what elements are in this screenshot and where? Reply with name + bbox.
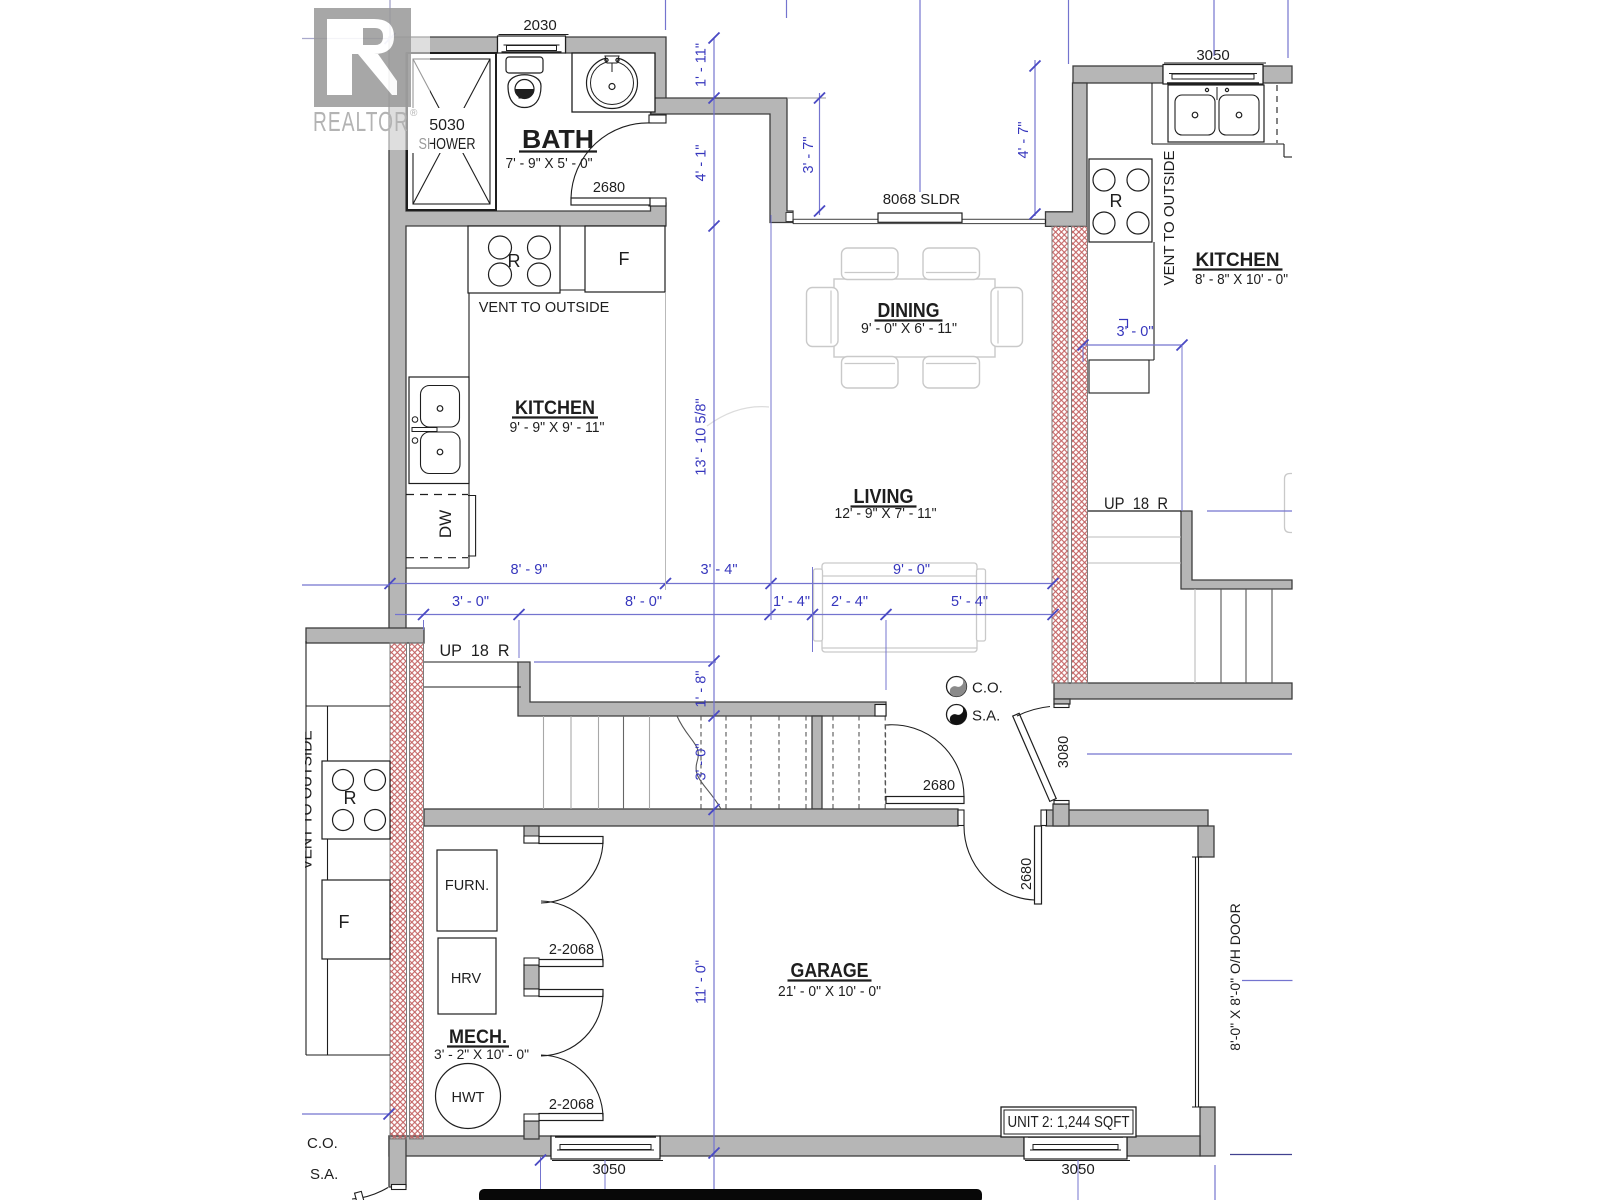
svg-text:5030: 5030: [429, 117, 465, 134]
svg-text:9' - 9" X 9' - 11": 9' - 9" X 9' - 11": [510, 420, 605, 436]
svg-text:1' - 4": 1' - 4": [773, 594, 810, 610]
svg-text:VENT TO OUTSIDE: VENT TO OUTSIDE: [479, 300, 610, 316]
svg-text:4' - 1": 4' - 1": [694, 145, 710, 182]
svg-text:3050: 3050: [1061, 1161, 1094, 1178]
svg-text:3' - 2" X 10' - 0": 3' - 2" X 10' - 0": [434, 1046, 529, 1062]
svg-text:UP 18 R: UP 18 R: [1104, 494, 1168, 513]
svg-text:DINING: DINING: [878, 300, 940, 322]
svg-text:S.A.: S.A.: [972, 708, 1000, 725]
svg-text:UP 18 R: UP 18 R: [440, 641, 510, 660]
svg-text:3' - 0": 3' - 0": [1117, 324, 1154, 340]
svg-text:F: F: [517, 92, 529, 99]
svg-text:F: F: [339, 912, 350, 932]
svg-text:13' - 10 5/8": 13' - 10 5/8": [694, 398, 710, 475]
svg-text:UNIT 2: 1,244 SQFT: UNIT 2: 1,244 SQFT: [1008, 1114, 1130, 1131]
svg-text:2680: 2680: [923, 778, 955, 794]
svg-text:C.O.: C.O.: [307, 1135, 338, 1152]
svg-text:2-2068: 2-2068: [549, 1097, 594, 1113]
svg-text:DW: DW: [436, 510, 455, 538]
svg-text:HRV: HRV: [451, 971, 482, 987]
svg-text:21' - 0" X 10' - 0": 21' - 0" X 10' - 0": [778, 984, 881, 1000]
svg-text:GARAGE: GARAGE: [791, 960, 869, 982]
svg-text:3080: 3080: [1056, 736, 1072, 768]
svg-text:2680: 2680: [1019, 858, 1035, 890]
svg-text:1' - 8": 1' - 8": [694, 671, 710, 708]
svg-text:9' - 0": 9' - 0": [893, 562, 930, 578]
svg-text:9' - 0" X 6' - 11": 9' - 0" X 6' - 11": [861, 321, 957, 337]
svg-text:7' - 9" X 5' - 0": 7' - 9" X 5' - 0": [506, 156, 593, 172]
svg-text:HWT: HWT: [451, 1090, 484, 1106]
svg-text:REALTOR: REALTOR: [313, 106, 409, 137]
svg-text:3050: 3050: [1196, 47, 1229, 64]
svg-text:KITCHEN: KITCHEN: [1196, 249, 1280, 271]
svg-text:8'-0" X 8'-0" O/H DOOR: 8'-0" X 8'-0" O/H DOOR: [1227, 903, 1243, 1051]
svg-text:C.O.: C.O.: [972, 680, 1003, 697]
svg-text:2030: 2030: [523, 17, 556, 34]
svg-text:R: R: [508, 251, 521, 271]
svg-text:8' - 9": 8' - 9": [511, 562, 548, 578]
svg-text:3' - 0": 3' - 0": [694, 744, 710, 781]
svg-text:3' - 7": 3' - 7": [801, 137, 817, 174]
svg-text:5' - 4": 5' - 4": [951, 594, 988, 610]
svg-text:12' - 9" X 7' - 11": 12' - 9" X 7' - 11": [835, 506, 937, 522]
svg-text:2-2068: 2-2068: [549, 942, 594, 958]
svg-text:3050: 3050: [592, 1161, 625, 1178]
svg-text:S.A.: S.A.: [310, 1166, 338, 1183]
svg-text:11' - 0": 11' - 0": [694, 960, 710, 1004]
svg-text:3' - 4": 3' - 4": [701, 562, 738, 578]
svg-text:BATH: BATH: [522, 124, 594, 154]
svg-text:FURN.: FURN.: [445, 878, 489, 894]
svg-text:KITCHEN: KITCHEN: [515, 397, 595, 419]
svg-text:R: R: [1110, 191, 1123, 211]
svg-text:2680: 2680: [593, 180, 625, 196]
svg-text:F: F: [619, 249, 630, 269]
svg-text:4' - 7": 4' - 7": [1016, 122, 1032, 159]
svg-text:R: R: [344, 788, 357, 808]
svg-text:LIVING: LIVING: [854, 486, 914, 508]
svg-text:MECH.: MECH.: [449, 1027, 507, 1048]
svg-text:1' - 11": 1' - 11": [694, 43, 710, 87]
svg-text:8' - 0": 8' - 0": [625, 594, 662, 610]
svg-text:8' - 8" X 10' - 0": 8' - 8" X 10' - 0": [1195, 272, 1288, 288]
svg-text:VENT TO OUTSIDE: VENT TO OUTSIDE: [1161, 150, 1178, 285]
svg-text:3' - 0": 3' - 0": [452, 594, 489, 610]
svg-text:®: ®: [410, 108, 418, 119]
svg-text:2' - 4": 2' - 4": [831, 594, 868, 610]
svg-text:8068 SLDR: 8068 SLDR: [883, 191, 961, 208]
